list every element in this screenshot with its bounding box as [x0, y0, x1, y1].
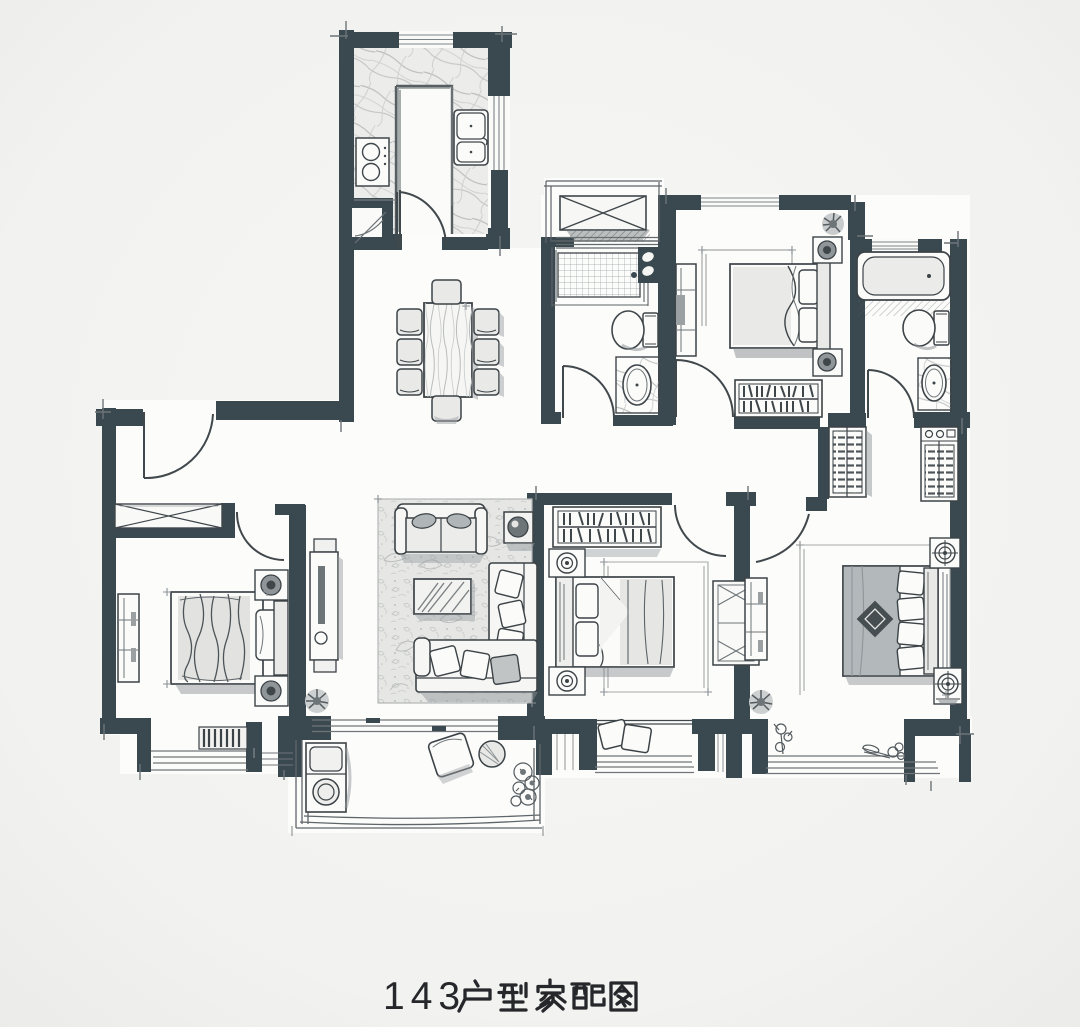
svg-text:143: 143	[383, 975, 466, 1018]
